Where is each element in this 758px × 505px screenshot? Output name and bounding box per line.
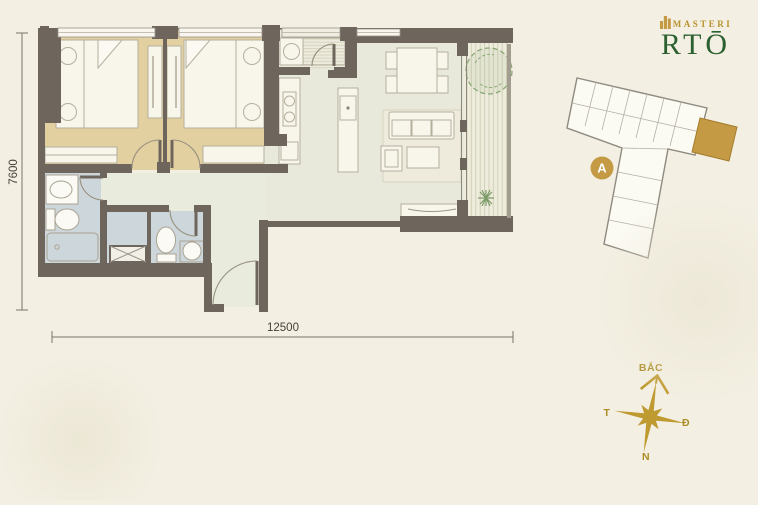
project-logo: MASTERI RTŌ [638,16,754,60]
pillow-icon [60,48,77,65]
closet-strip-2 [167,46,181,118]
compass-south-label: N [642,451,650,463]
window [179,28,262,37]
balcony-railing [507,44,511,218]
shaft-box [110,246,146,262]
window [357,29,400,36]
highlighted-unit [692,118,737,161]
toilet-tank [157,254,176,262]
bed-2 [184,40,264,128]
compass-rose-icon: BẮC T Đ N [604,361,693,463]
building-outline [567,78,707,258]
keyplan: A [567,78,737,258]
structural-pier [42,28,61,123]
door-jamb [457,43,468,56]
toilet-icon [55,209,79,230]
desk [203,146,264,163]
tree-icon [466,48,512,94]
plant-icon [478,190,494,206]
window [58,28,155,37]
bed-1 [56,40,138,128]
kitchen-island [338,88,358,172]
closet-strip-1 [148,46,162,118]
sofa [389,112,454,139]
height-dimension-label: 7600 [8,159,20,185]
compass-west-label: T [604,407,611,419]
vanity [46,175,78,204]
toilet-tank [46,209,55,230]
width-dimension-label: 12500 [267,322,299,334]
block-label: A [597,161,607,176]
floor-plan-page: 12500 7600 A BẮC T [0,0,758,500]
logo-name-text: RTŌ [638,30,754,60]
kitchen-counter [279,78,300,164]
faucet-icon [346,106,349,109]
coffee-table [407,147,439,168]
sink-icon [183,242,201,260]
toilet-icon [157,227,176,253]
compass-north-label: BẮC [639,361,663,374]
door-jamb [457,200,468,216]
pillow-icon [60,104,77,121]
dining-table [397,48,437,93]
compass-east-label: Đ [682,417,690,429]
plan-svg: 12500 7600 A BẮC T [0,0,758,500]
block-a-badge: A [591,157,614,180]
pillow-icon [244,104,261,121]
window [282,28,340,37]
pillow-icon [244,48,261,65]
tv-console [401,204,462,217]
